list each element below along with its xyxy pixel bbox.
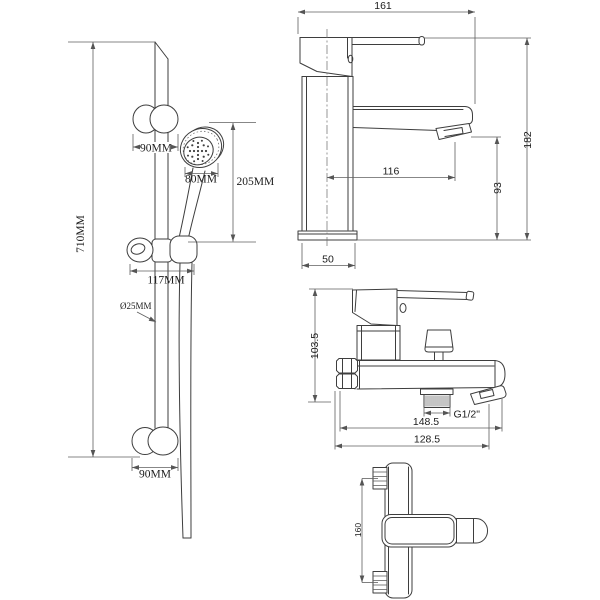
dim-label-inlet-centers: 160 <box>353 523 363 537</box>
basin-mixer-dimensions: 161 182 116 93 50 <box>298 0 534 269</box>
dim-label-bath-mixer-height: 103.5 <box>309 333 321 359</box>
threaded-outlet <box>421 389 454 408</box>
aerator <box>436 124 472 140</box>
dim-label-mixer-height: 182 <box>522 131 534 149</box>
tub-spout-end <box>471 386 507 405</box>
basin-mixer-body <box>302 77 353 232</box>
top-view-body <box>382 515 457 548</box>
basin-mixer-handle <box>300 37 425 77</box>
basin-mixer-base <box>298 231 357 240</box>
dim-label-spout-reach: 116 <box>383 166 400 178</box>
bath-mixer-top-view: 160 <box>353 463 488 598</box>
shower-head <box>174 120 231 175</box>
bath-mixer-side-view: 103.5 G1/2" 148.5 128.5 <box>308 289 506 450</box>
dim-label-rail-height: 710MM <box>75 215 87 253</box>
drawing-canvas: 710MM 90MM 80MM 205MM 117MM Ø25MM 90MM <box>0 0 600 600</box>
dim-label-holder-width: 117MM <box>147 275 184 287</box>
bath-mixer-barrel <box>355 361 505 390</box>
lever-tip <box>419 37 425 46</box>
basin-mixer-spout <box>353 107 473 140</box>
shower-rail-diagram: 710MM 90MM 80MM 205MM 117MM Ø25MM 90MM <box>68 42 274 538</box>
rail-tube <box>155 42 168 428</box>
dim-label-bottom-bracket-width: 90MM <box>139 469 171 481</box>
lever-tip <box>466 291 474 300</box>
dim-label-top-bracket-width: 90MM <box>140 143 172 155</box>
basin-mixer-side-view: 161 182 116 93 50 <box>298 0 534 269</box>
dim-label-mixer-width: 161 <box>374 0 392 12</box>
top-view-dimensions: 160 <box>353 479 378 583</box>
shower-hose <box>179 263 192 538</box>
top-view-spout <box>457 519 488 544</box>
dim-label-head-diameter: 80MM <box>185 174 217 186</box>
dim-label-tube-diameter: Ø25MM <box>120 301 152 311</box>
bath-mixer-handle <box>353 289 475 326</box>
bath-mixer-valve-block <box>357 326 400 361</box>
dim-label-thread: G1/2" <box>454 409 481 421</box>
technical-drawing: 710MM 90MM 80MM 205MM 117MM Ø25MM 90MM <box>0 0 600 600</box>
dim-label-overall-length: 148.5 <box>413 416 439 428</box>
dim-label-body-length: 128.5 <box>414 434 440 446</box>
slider-holder <box>127 236 197 263</box>
wall-inlet-nuts <box>337 359 358 389</box>
dim-label-spout-height: 93 <box>492 182 504 194</box>
bottom-bracket <box>132 427 178 455</box>
dim-label-base-depth: 50 <box>322 254 334 266</box>
diverter-knob <box>425 330 453 361</box>
dim-label-head-offset: 205MM <box>237 176 275 188</box>
top-bracket <box>133 105 178 133</box>
